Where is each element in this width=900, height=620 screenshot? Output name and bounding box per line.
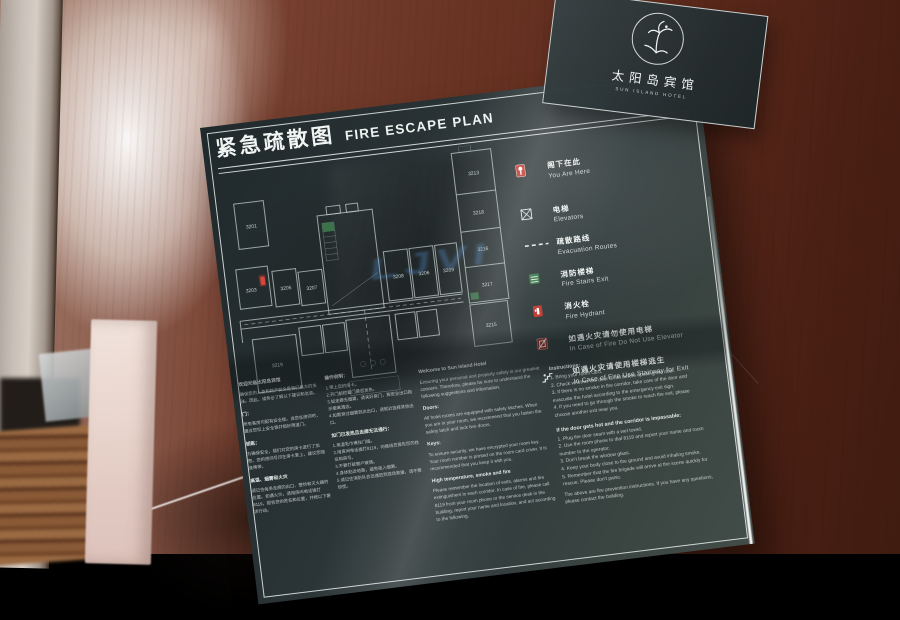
right-wing xyxy=(451,149,509,303)
info-column-english-instructions: Instructions: 1. Bring your room card. 2… xyxy=(548,341,724,566)
legend-label-en: Elevators xyxy=(553,213,583,224)
foreground-wall-corner xyxy=(85,319,157,565)
hall-stub xyxy=(346,203,359,212)
cn-impassable-list: 1.用湿毛巾堵住门缝。 2.用房间电话拨打8119，向接线员报告您的姓名和房号。… xyxy=(332,432,423,492)
info-column-english-welcome: Welcome to Sun Island Hotel Ensuring you… xyxy=(417,348,565,581)
room-number: 3201 xyxy=(246,223,258,230)
room xyxy=(417,309,440,337)
fire-stairs-marker xyxy=(322,222,335,232)
info-column-chinese-instructions: 操作说明： 1.带上您的房卡。 2.开门前检查门是否发热。 3.如走廊无烟雾，请… xyxy=(323,354,436,593)
room xyxy=(395,312,418,340)
room-number: 3205 xyxy=(280,285,292,292)
hall-stub xyxy=(326,205,341,215)
room xyxy=(322,323,347,353)
logo-circle xyxy=(629,10,687,68)
room-number: 3217 xyxy=(482,281,494,288)
room-number: 3213 xyxy=(468,170,480,177)
room-number: 3219 xyxy=(272,362,284,369)
legend-item-you-are-here: 阁下在此 You Are Here xyxy=(515,142,698,184)
flower-logo-icon xyxy=(636,16,681,61)
fire-stairs-marker xyxy=(470,292,479,300)
fire-escape-sign: 紧急疏散图 FIRE ESCAPE PLAN xyxy=(200,67,755,604)
elevator-icon xyxy=(520,205,547,220)
room xyxy=(299,325,324,355)
room-number: 3207 xyxy=(306,285,318,292)
you-are-here-icon xyxy=(515,161,543,178)
cn-instructions-list: 1.带上您的房卡。 2.开门前检查门是否发热。 3.如走廊无烟雾，请关好房门，按… xyxy=(325,374,416,427)
room-number: 3215 xyxy=(485,322,497,329)
fire-stairs-icon xyxy=(528,269,555,284)
evacuation-route-icon xyxy=(524,237,551,251)
room-number: 3203 xyxy=(245,287,257,294)
room-number: 3218 xyxy=(473,209,485,216)
fire-hydrant-icon xyxy=(532,302,559,318)
